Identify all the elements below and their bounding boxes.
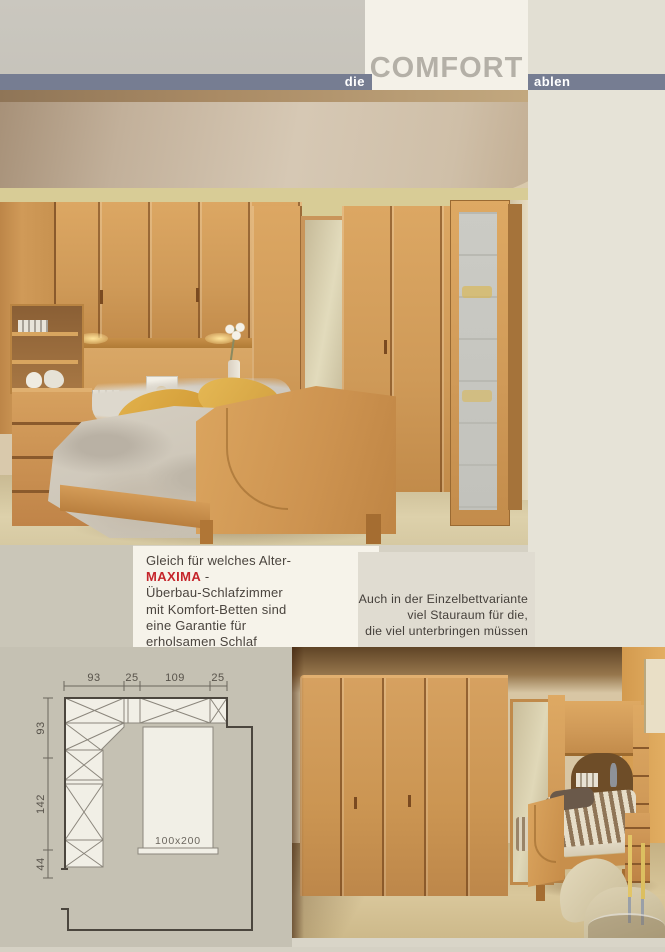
header-word-post: ablen [534, 74, 570, 89]
photo-top-shadow [0, 90, 528, 102]
dim-left-142: 142 [35, 794, 47, 814]
niche-books [576, 773, 598, 787]
wardrobe-left [300, 675, 508, 896]
plan-wardrobes-left [65, 750, 103, 867]
header-bar-right: ablen [528, 74, 665, 90]
intro-brand-line: MAXIMA - [146, 569, 371, 585]
plan-wardrobes-top [65, 698, 227, 723]
photo-maxima-single-bedroom [292, 647, 665, 938]
door-handle [354, 797, 357, 809]
glass-table-edge [588, 913, 665, 938]
niche-vase [610, 763, 617, 787]
page-title: COMFORT [365, 50, 528, 90]
door-handle [196, 288, 199, 302]
cabinet-dark-side [508, 204, 522, 510]
dim-top-109: 109 [165, 672, 185, 684]
orchid-blossoms [222, 322, 248, 340]
shelf-books [18, 320, 48, 332]
middle-left-panel [0, 545, 133, 647]
header-word-pre: die [345, 74, 365, 89]
note-line-3: die viel unterbringen müssen [358, 624, 528, 640]
intro-line-2: Überbau-Schlafzimmer [146, 585, 371, 601]
bed-leg [536, 885, 545, 901]
floor-plan-diagram: 93 25 109 25 93 142 44 [0, 647, 292, 947]
bed-leg [366, 514, 381, 544]
intro-line-4: eine Garantie für [146, 618, 371, 634]
photo-maxima-double-bedroom [0, 90, 528, 545]
dim-left-93: 93 [35, 721, 47, 734]
dim-top-93: 93 [87, 672, 100, 684]
note-line-2: viel Stauraum für die, [358, 608, 528, 624]
dim-top-25b: 25 [211, 672, 224, 684]
ceramic-vases [44, 370, 64, 388]
door-handle [100, 290, 103, 304]
header-bar-left: die [0, 74, 372, 90]
ceramic-vases [26, 372, 42, 388]
plan-corner-unit [65, 723, 124, 750]
brand-suffix: - [201, 569, 209, 584]
intro-line-3: mit Komfort-Betten sind [146, 602, 371, 618]
shelf-board [12, 360, 78, 364]
glass-cabinet-frosted-panel [459, 212, 497, 510]
bed-leg [200, 520, 213, 544]
door-handle [384, 340, 387, 354]
note-line-1: Auch in der Einzelbettvariante [358, 592, 528, 608]
candle [641, 843, 645, 899]
candle [628, 835, 632, 897]
wall-picture [644, 659, 665, 733]
page-bottom-strip [292, 938, 665, 947]
right-margin-strip [528, 90, 665, 647]
dim-left-44: 44 [35, 857, 47, 870]
overbed-cabinet [565, 701, 641, 756]
brand-name: MAXIMA [146, 569, 201, 584]
dim-top-25a: 25 [125, 672, 138, 684]
floor-plan-panel: 93 25 109 25 93 142 44 [0, 647, 292, 947]
intro-line-1: Gleich für welches Alter- [146, 553, 371, 569]
glass-shelf-items [462, 286, 492, 298]
photo-left-vignette [292, 647, 304, 938]
catalog-page: { "page": { "background": "#d5d1c4" }, "… [0, 0, 665, 947]
door-handle [408, 795, 411, 807]
plan-bed-label: 100x200 [155, 835, 201, 847]
shelf-board [12, 332, 78, 336]
text-block-maxima: Gleich für welches Alter- MAXIMA - Überb… [133, 546, 379, 648]
glass-shelf-items [462, 390, 492, 402]
